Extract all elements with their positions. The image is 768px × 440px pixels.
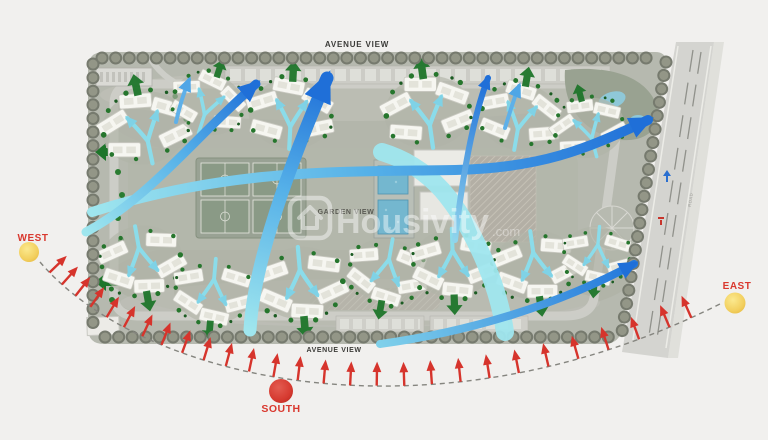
watermark-suffix: .com xyxy=(492,224,520,239)
label-east: EAST xyxy=(723,281,752,292)
south-marker xyxy=(269,379,293,403)
label-west: WEST xyxy=(18,233,49,244)
master-plan-canvas: ROAD xyxy=(0,0,768,440)
label-south: SOUTH xyxy=(261,403,300,415)
sun-west xyxy=(19,242,39,262)
site-plan: ROAD xyxy=(0,0,768,440)
sun-east xyxy=(725,293,746,314)
label-avenue-view-bottom: AVENUE VIEW xyxy=(306,347,361,354)
watermark-brand: Housivity xyxy=(336,203,489,241)
parking-structure xyxy=(96,68,152,86)
label-avenue-view-top: AVENUE VIEW xyxy=(325,40,389,49)
